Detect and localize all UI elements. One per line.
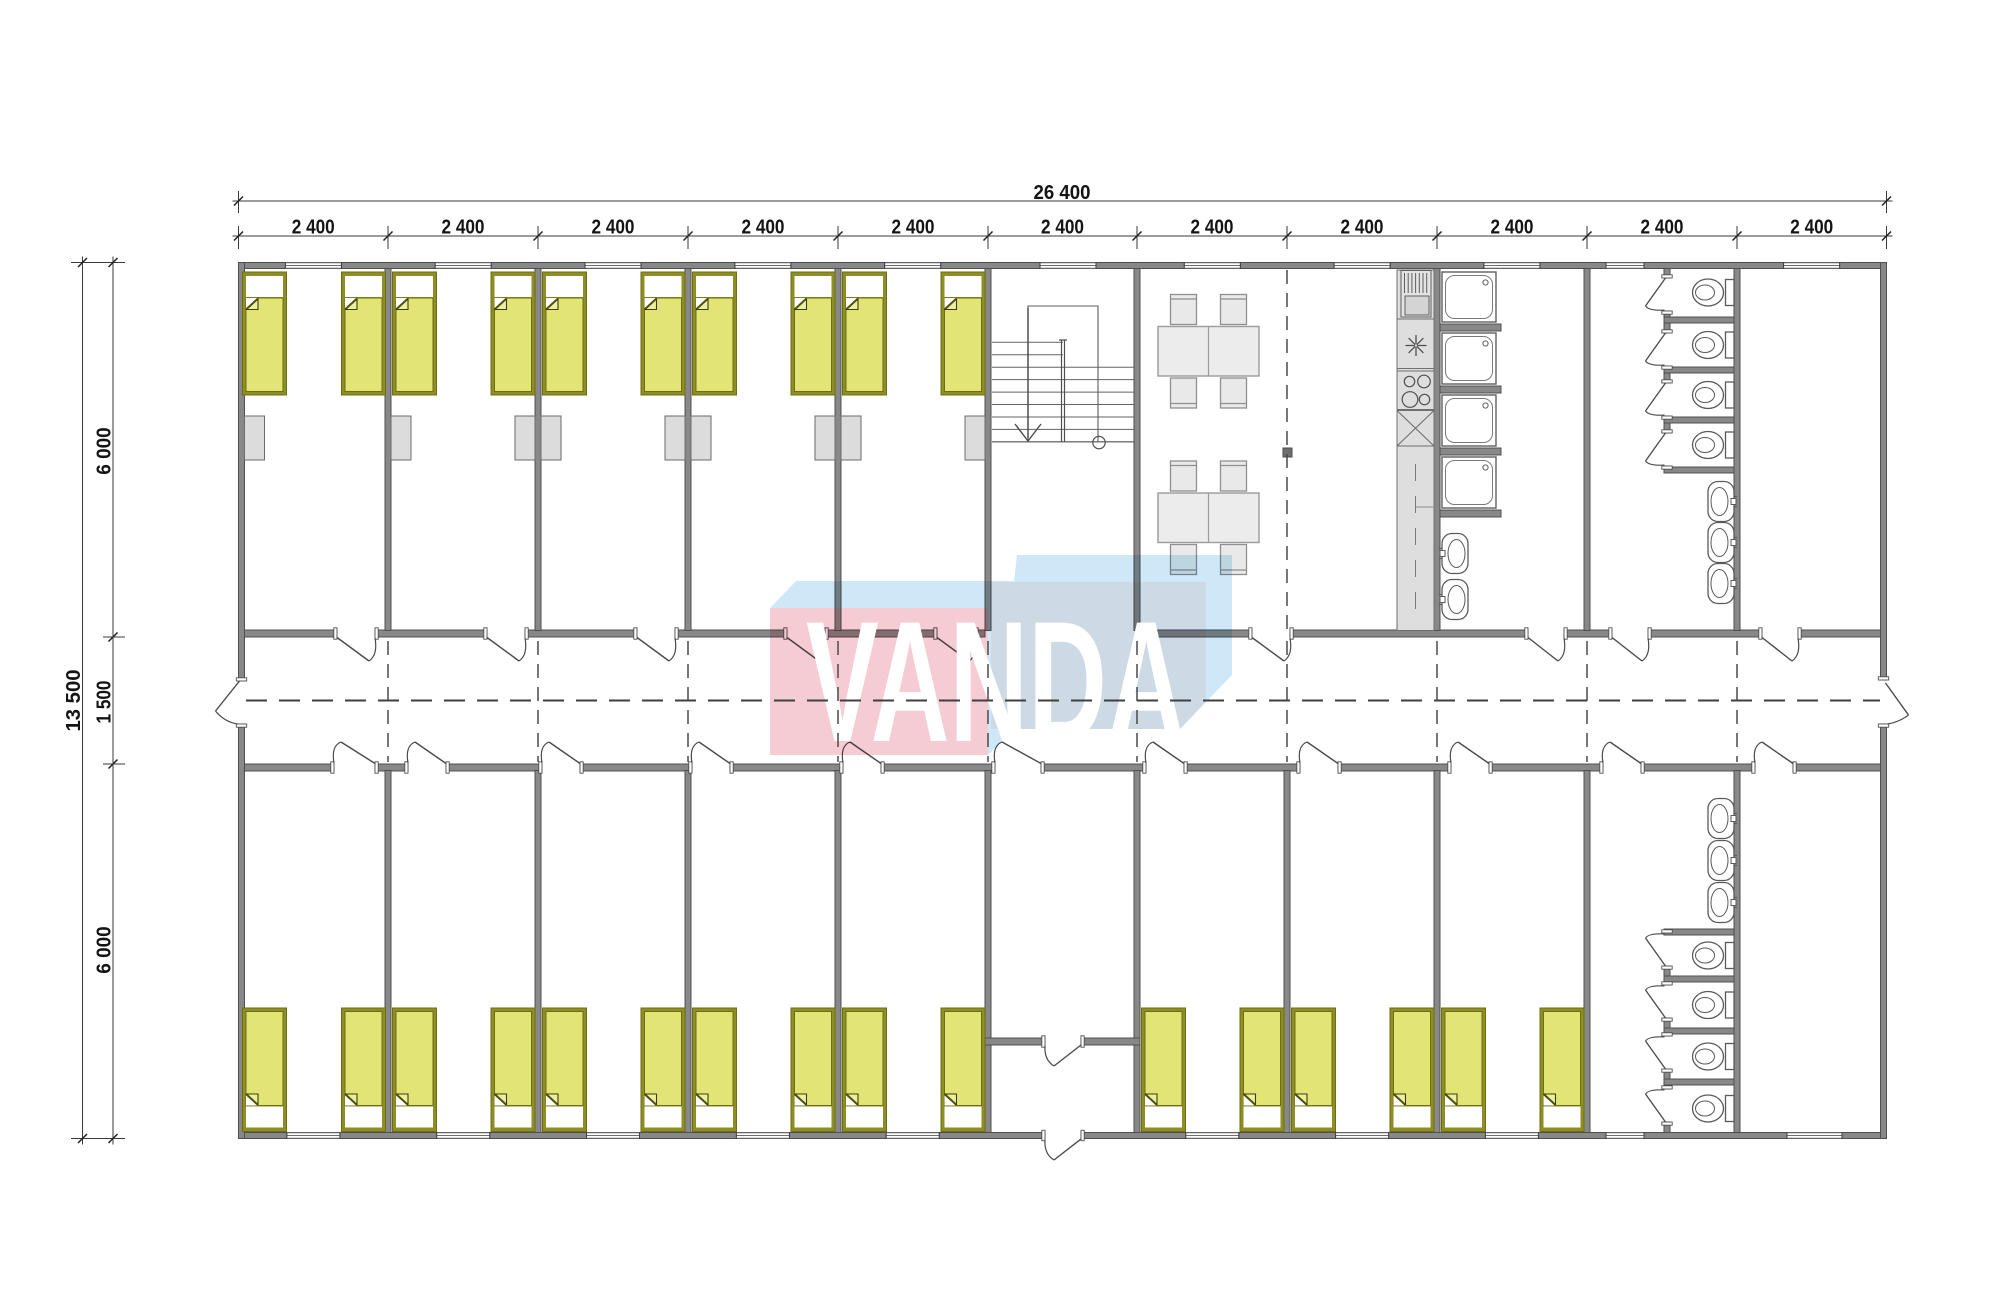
- svg-text:2 400: 2 400: [1641, 217, 1684, 239]
- svg-text:2 400: 2 400: [1790, 217, 1833, 239]
- svg-text:2 400: 2 400: [1191, 217, 1234, 239]
- svg-text:2 400: 2 400: [592, 217, 635, 239]
- svg-text:6 000: 6 000: [94, 926, 116, 974]
- svg-text:VANDA: VANDA: [806, 586, 1186, 778]
- svg-text:2 400: 2 400: [1341, 217, 1384, 239]
- svg-text:13 500: 13 500: [63, 670, 85, 732]
- svg-text:2 400: 2 400: [892, 217, 935, 239]
- svg-text:6 000: 6 000: [94, 427, 116, 475]
- svg-text:2 400: 2 400: [292, 217, 335, 239]
- svg-text:1 500: 1 500: [94, 681, 116, 724]
- svg-text:26 400: 26 400: [1034, 182, 1091, 204]
- svg-text:2 400: 2 400: [1041, 217, 1084, 239]
- svg-text:2 400: 2 400: [442, 217, 485, 239]
- svg-text:2 400: 2 400: [742, 217, 785, 239]
- svg-text:2 400: 2 400: [1491, 217, 1534, 239]
